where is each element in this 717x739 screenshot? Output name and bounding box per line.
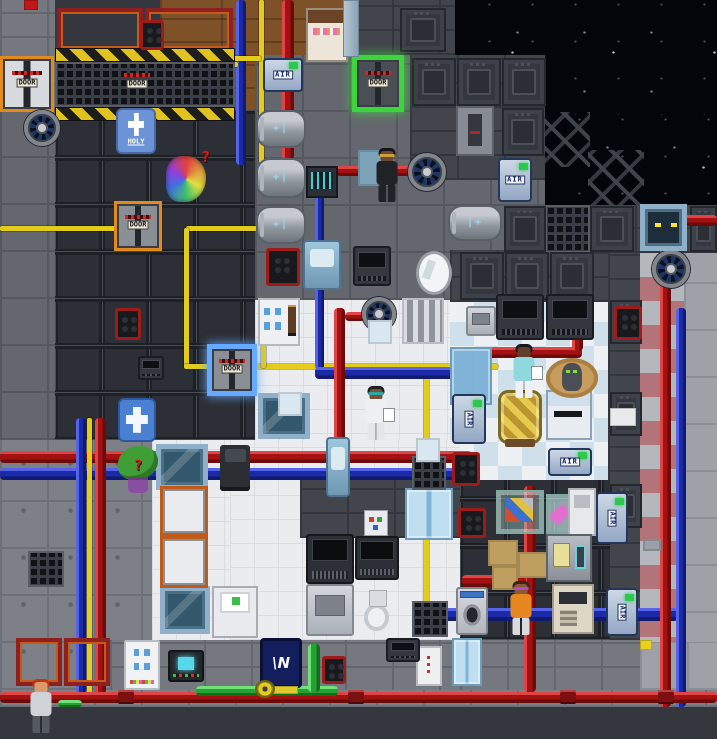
cat-on-bed[interactable] (546, 358, 598, 398)
laptop-console[interactable] (355, 536, 399, 580)
cryo-tube-label: |+ (467, 218, 483, 228)
wall-chip (412, 58, 456, 106)
green-door-label: DOOR (368, 78, 389, 87)
tan-tile (518, 552, 548, 578)
green-door[interactable]: DOOR (354, 57, 402, 110)
grate-floor (545, 205, 590, 253)
wall-chip (457, 58, 501, 106)
station-map: DOORDOORDOORDOORDOORAIRAIRAIRAIRAIRAIR+|… (0, 0, 717, 707)
wall-chip (504, 206, 546, 252)
pipe-blue-v (236, 0, 246, 165)
holy-sign: HOLY (116, 108, 156, 154)
airlock-door-west[interactable]: DOOR (0, 56, 54, 112)
light-bulb (640, 640, 652, 650)
air-canister-label: AIR (273, 71, 293, 80)
pipe-valve-wheel[interactable] (255, 680, 275, 698)
rack-frame[interactable] (57, 8, 143, 52)
office-chair[interactable] (220, 445, 250, 491)
rainbow-geode-label: ? (201, 150, 210, 165)
support-pillar (343, 0, 359, 57)
doctor-white-coat-item (383, 408, 395, 422)
console-oven[interactable] (546, 294, 594, 340)
accent-tile (278, 392, 302, 416)
wall-chip (505, 252, 549, 300)
window-with-eyes (640, 204, 687, 251)
roller-bed[interactable] (160, 536, 208, 588)
apc-panel[interactable] (322, 656, 346, 684)
tan-tile (488, 540, 518, 566)
wire-wood-3 (233, 56, 261, 61)
apc-panel[interactable] (452, 452, 480, 486)
wire-chapel-w (0, 226, 116, 231)
pipe-green-stub (58, 700, 82, 707)
mystery-plant[interactable]: ? (116, 446, 160, 494)
doctor-white-coat-legs (368, 423, 385, 440)
pipe-east-blue-v (676, 308, 686, 707)
gray-machine[interactable] (466, 306, 496, 336)
wall-vent-grille (402, 298, 444, 344)
air-scrubber-grate (28, 551, 64, 587)
air-canister-label: AIR (560, 458, 580, 467)
air-canister-label: AIR (505, 176, 525, 185)
cryo-tube[interactable]: +| (256, 206, 306, 244)
lattice-2 (588, 150, 644, 205)
window (160, 586, 210, 634)
wall-sign-dots (364, 510, 388, 536)
gray-east-strip (684, 253, 717, 707)
engineer-orange[interactable] (504, 581, 538, 641)
lattice-1 (540, 112, 590, 167)
redhead-crew-legs (33, 716, 50, 733)
engineer-orange-legs (513, 618, 530, 635)
wire-chapel-v (184, 228, 189, 368)
holy-sign-label: HOLY (128, 139, 145, 146)
glass-door-toilet[interactable] (405, 488, 453, 540)
glass-door-bottom[interactable] (452, 638, 482, 686)
corridor-left (0, 110, 55, 440)
air-canister-label: AIR (465, 411, 474, 428)
wall-chip (502, 58, 546, 106)
wall-chip (590, 206, 634, 252)
microwave[interactable] (138, 356, 164, 380)
apc-panel[interactable] (458, 508, 486, 538)
air-canister[interactable]: AIR (263, 58, 303, 92)
doctor-white-coat-acc (369, 392, 384, 395)
roller-bed[interactable] (160, 486, 208, 536)
chaplain-legs (379, 185, 396, 202)
air-canister-label: AIR (618, 604, 627, 621)
dark-console[interactable] (306, 534, 354, 584)
cyan-screen-console[interactable] (168, 650, 204, 682)
pipe-medbay-red-v (334, 308, 345, 456)
wall-plate (610, 408, 636, 426)
pipe-coupling (658, 690, 674, 704)
engineer-orange-torso (511, 594, 532, 618)
cryo-tube-label: +| (273, 220, 289, 230)
medical-cross-sign (118, 398, 156, 442)
chapel-door[interactable]: DOOR (114, 201, 162, 251)
snack-vendor[interactable] (306, 8, 348, 62)
nanotrasen-poster-label: \N (272, 654, 290, 672)
protolathe[interactable] (546, 534, 592, 582)
air-canister[interactable]: AIR (498, 158, 532, 202)
chapel-door-label: DOOR (128, 221, 149, 230)
doctor-blue-scrubs-legs (516, 381, 533, 398)
chaplain[interactable] (372, 148, 402, 206)
air-canister[interactable]: AIR (596, 492, 628, 544)
pipe-green-v (308, 644, 320, 692)
white-machine[interactable] (568, 488, 596, 536)
air-canister[interactable]: AIR (452, 394, 486, 444)
mirror[interactable] (416, 251, 452, 295)
window (156, 444, 208, 490)
wall-chip (400, 8, 446, 52)
redhead-crew[interactable] (24, 679, 58, 739)
cat-body (562, 363, 583, 391)
cryo-tube[interactable]: +| (256, 110, 306, 148)
pipe-coupling (118, 690, 134, 704)
cryo-tube-label: +| (273, 124, 289, 134)
accent-tile (368, 320, 392, 344)
engineer-orange-acc (514, 587, 529, 590)
red-marker (24, 0, 38, 10)
microwave[interactable] (386, 638, 420, 662)
chaplain-acc (380, 154, 395, 157)
wood-door-label: DOOR (127, 80, 148, 89)
wall-bottom-band-2 (460, 640, 640, 692)
airlock-door-west-label: DOOR (17, 79, 38, 88)
doctor-blue-scrubs-item (531, 366, 543, 380)
medbay-door-label: DOOR (222, 365, 243, 374)
microwave[interactable] (353, 246, 391, 286)
air-scrubber-grate (412, 601, 448, 637)
air-canister[interactable]: AIR (548, 448, 592, 476)
cryo-tube-label: +| (273, 173, 289, 183)
air-canister[interactable]: AIR (606, 588, 638, 636)
washing-machine[interactable] (456, 587, 488, 635)
fax-machine[interactable] (552, 584, 594, 634)
air-canister-label: AIR (608, 510, 617, 527)
wall-chip (502, 108, 544, 156)
wall-chip (460, 252, 504, 300)
pipe-coupling (348, 690, 364, 704)
hazard-stripe (55, 48, 235, 62)
wall-chip (550, 252, 594, 300)
shower-unit[interactable] (303, 240, 341, 290)
accent-tile (416, 438, 440, 462)
wall-chip (690, 206, 717, 252)
pipe-east-red-v (660, 215, 671, 707)
pipe-coupling (560, 690, 576, 704)
freezer-unit[interactable] (306, 166, 338, 198)
doctor-blue-scrubs[interactable] (508, 344, 540, 408)
lab-glass-case[interactable] (496, 490, 544, 534)
mystery-plant-label: ? (134, 459, 142, 473)
fan-turbine (408, 153, 446, 191)
apc-panel[interactable] (614, 306, 642, 340)
locker[interactable] (456, 106, 494, 156)
apc-panel[interactable] (115, 308, 141, 340)
light-machine[interactable] (306, 584, 354, 636)
rack-frame[interactable] (64, 638, 110, 686)
medical-records-console[interactable] (258, 298, 300, 346)
dropped-tool (643, 539, 661, 551)
apc-panel[interactable] (140, 20, 164, 50)
cat-eyes (566, 370, 570, 373)
doctor-white-coat[interactable] (360, 386, 392, 446)
wire-chapel-e (186, 226, 261, 231)
fan-turbine (24, 110, 60, 146)
toilet[interactable] (360, 590, 396, 638)
console-oven[interactable] (496, 294, 544, 340)
apc-panel[interactable] (266, 248, 300, 286)
cryo-tube[interactable]: |+ (448, 205, 502, 241)
chaplain-torso (377, 161, 398, 185)
medical-vendor[interactable] (124, 640, 160, 690)
fan-turbine (652, 250, 690, 288)
medbay-door[interactable]: DOOR (209, 346, 255, 394)
sleeper-pod[interactable] (326, 437, 350, 497)
cryo-tube[interactable]: +| (256, 158, 306, 198)
redhead-crew-torso (31, 692, 52, 716)
medkit-machine[interactable] (212, 586, 258, 638)
